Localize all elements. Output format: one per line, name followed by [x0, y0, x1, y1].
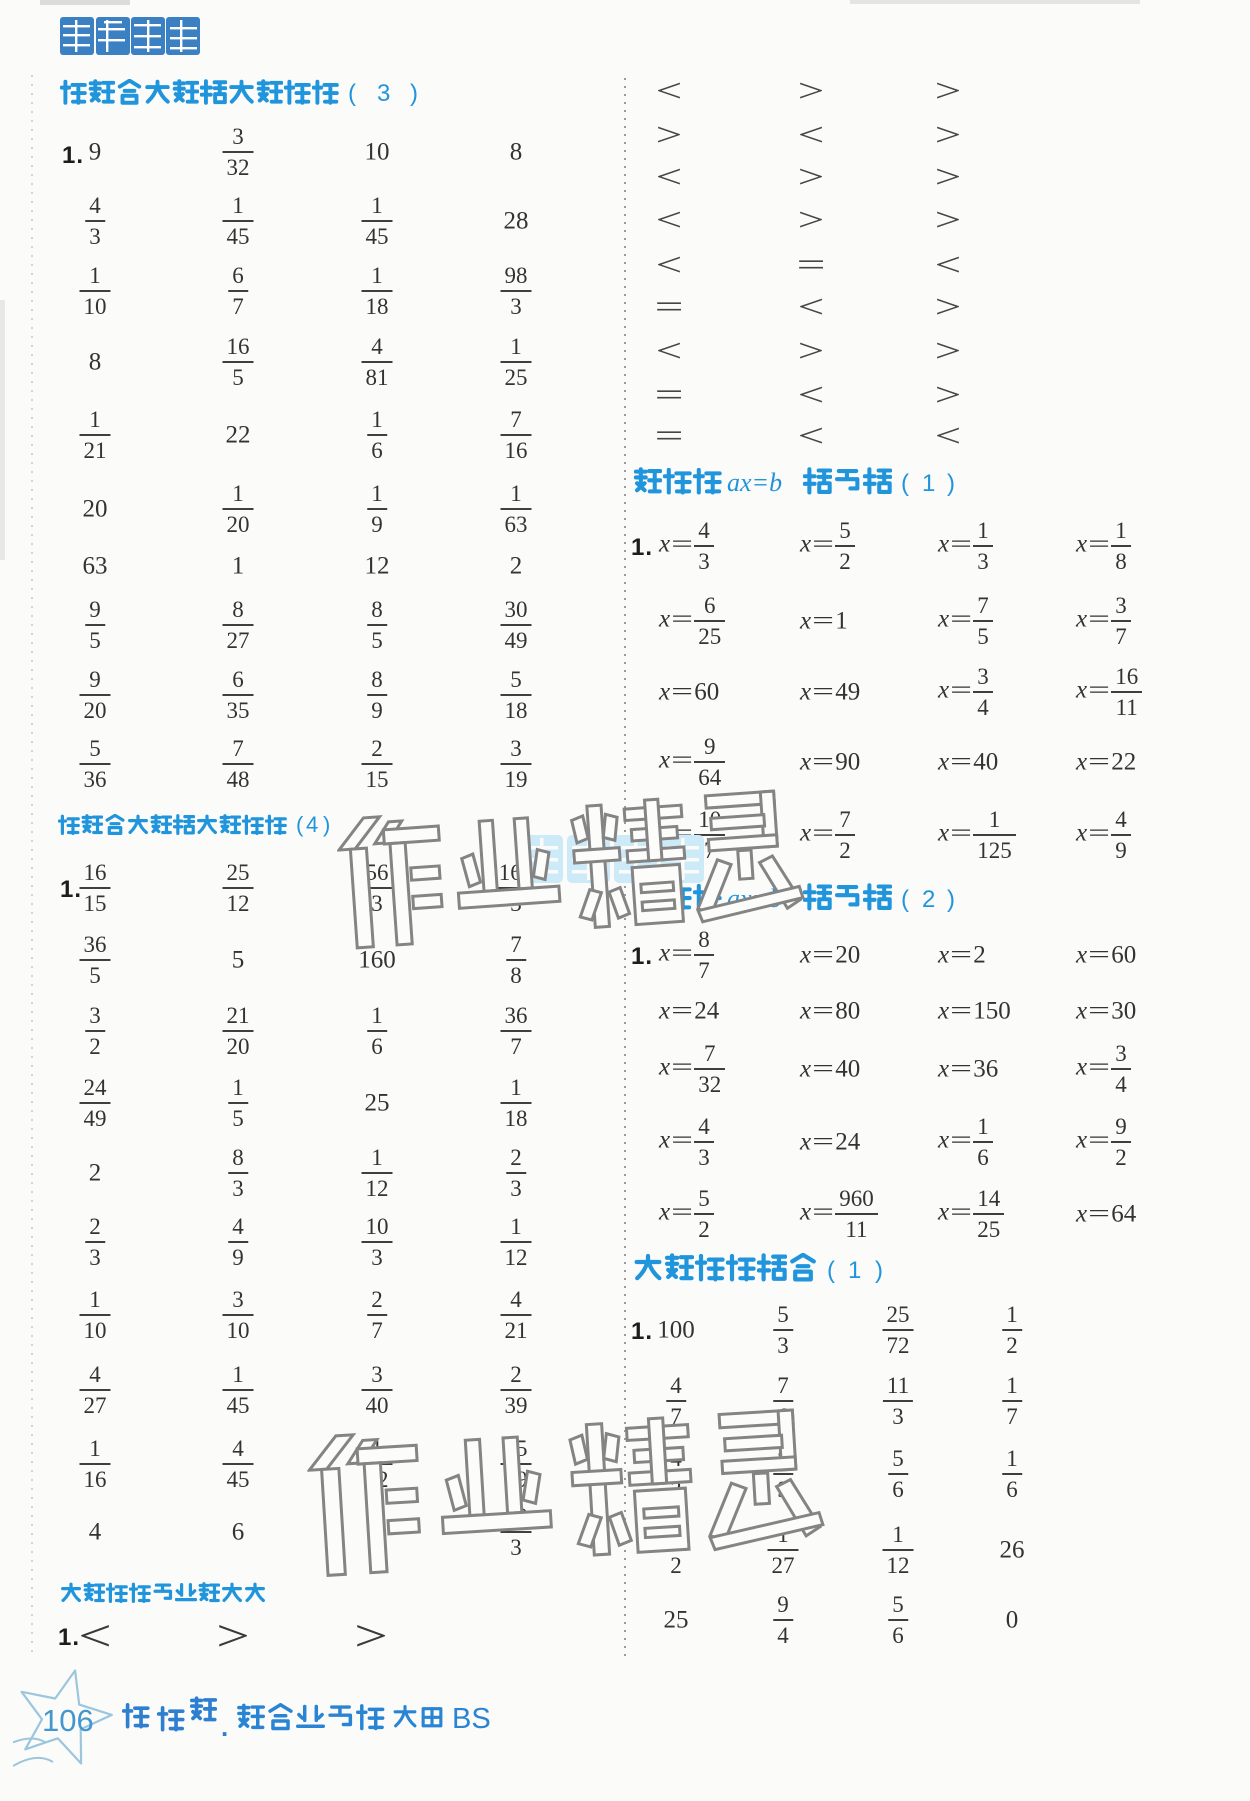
svg-text:(: ( — [827, 1257, 835, 1284]
svg-text:ax=b: ax=b — [727, 468, 782, 497]
svg-text:): ) — [323, 812, 330, 837]
svg-text:4: 4 — [306, 812, 318, 837]
svg-text:2: 2 — [922, 886, 935, 913]
svg-text:): ) — [947, 470, 955, 497]
svg-text:): ) — [947, 886, 955, 913]
svg-text:1: 1 — [922, 470, 935, 497]
svg-text:): ) — [875, 1257, 883, 1284]
svg-text:(: ( — [901, 470, 909, 497]
svg-text:BS: BS — [452, 1703, 491, 1735]
svg-text:): ) — [410, 80, 418, 107]
svg-text:(: ( — [348, 80, 356, 107]
svg-text:1: 1 — [848, 1257, 861, 1284]
svg-text:3: 3 — [377, 80, 390, 107]
svg-text:(: ( — [296, 812, 304, 837]
svg-text:(: ( — [901, 886, 909, 913]
